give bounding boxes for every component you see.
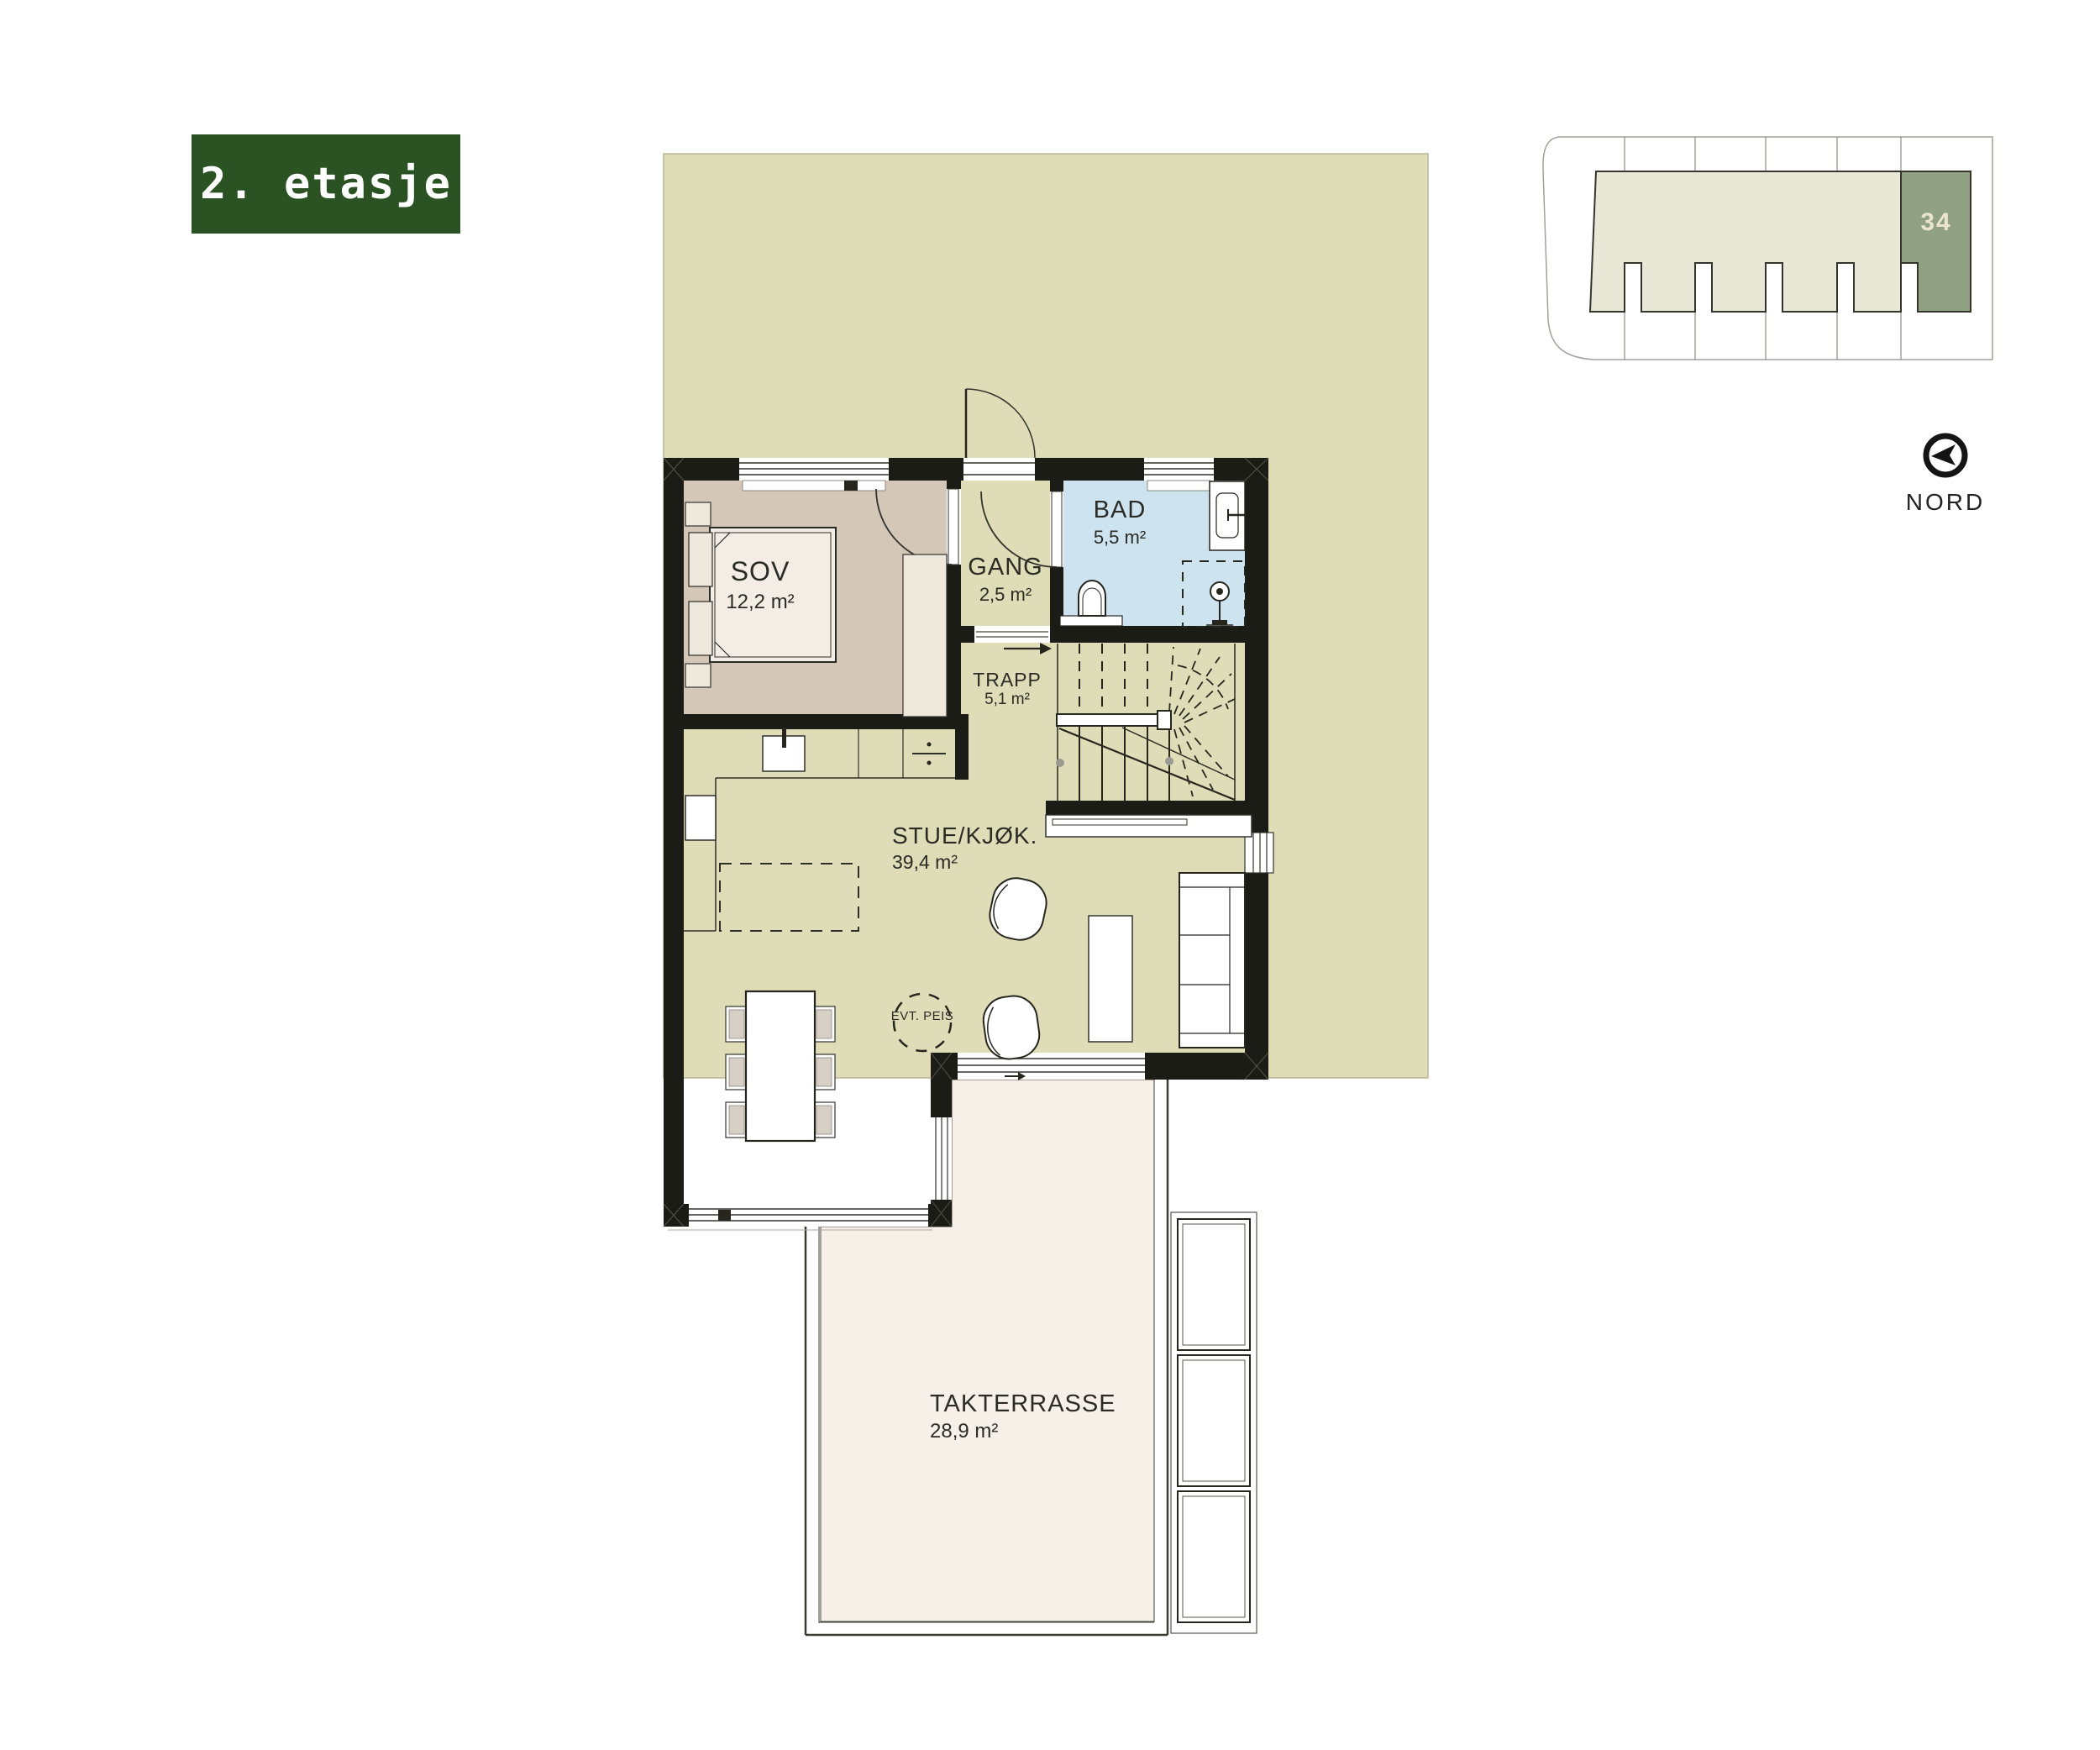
nightstand <box>685 664 711 687</box>
sofa <box>1179 873 1245 1048</box>
neighbour-terrace-boxes <box>1171 1212 1257 1633</box>
floorplan-page: 2. etasje <box>0 0 2100 1750</box>
compass <box>1926 436 1965 475</box>
window-bad <box>1144 458 1214 491</box>
room-label-stue: STUE/KJØK. 39,4 m² <box>892 823 1037 873</box>
terrace-floor <box>821 1080 1154 1621</box>
room-label-gang: GANG 2,5 m² <box>956 554 1055 605</box>
terrace-door <box>958 1053 1145 1080</box>
site-locator-map <box>1543 137 1992 360</box>
window-sov <box>739 458 889 491</box>
room-area: 2,5 m² <box>956 585 1055 604</box>
room-label-sov: SOV 12,2 m² <box>689 558 832 612</box>
threshold-gang-trapp <box>974 626 1050 643</box>
compass-label: NORD <box>1887 489 2004 516</box>
nightstand <box>685 502 711 526</box>
window-connector <box>931 1117 952 1200</box>
fireplace-label: EVT. PEIS <box>864 1009 981 1023</box>
window-south <box>668 1204 932 1230</box>
site-unit-number: 34 <box>1907 208 1966 237</box>
room-name: STUE/KJØK. <box>892 823 1037 848</box>
dining-set <box>726 991 835 1141</box>
room-area: 12,2 m² <box>689 591 832 612</box>
dining-table <box>746 991 815 1141</box>
room-name: SOV <box>689 558 832 586</box>
coffee-table <box>1089 916 1132 1042</box>
floorplan-drawing <box>0 0 2100 1750</box>
room-area: 5,1 m² <box>956 691 1058 708</box>
room-area: 28,9 m² <box>930 1421 1116 1442</box>
room-name: TRAPP <box>956 670 1058 690</box>
wardrobe <box>903 554 947 717</box>
sideboard <box>1046 815 1252 837</box>
room-label-bad: BAD 5,5 m² <box>1068 497 1171 548</box>
room-name: BAD <box>1068 497 1171 523</box>
room-area: 5,5 m² <box>1068 528 1171 547</box>
window-stue-east <box>1245 833 1273 873</box>
room-label-takterrasse: TAKTERRASSE 28,9 m² <box>930 1391 1116 1443</box>
room-name: TAKTERRASSE <box>930 1391 1116 1416</box>
room-label-trapp: TRAPP 5,1 m² <box>956 670 1058 708</box>
kitchen-appliance <box>685 796 716 840</box>
room-area: 39,4 m² <box>892 852 1037 872</box>
terrace <box>806 1080 1168 1635</box>
room-name: GANG <box>956 554 1055 580</box>
